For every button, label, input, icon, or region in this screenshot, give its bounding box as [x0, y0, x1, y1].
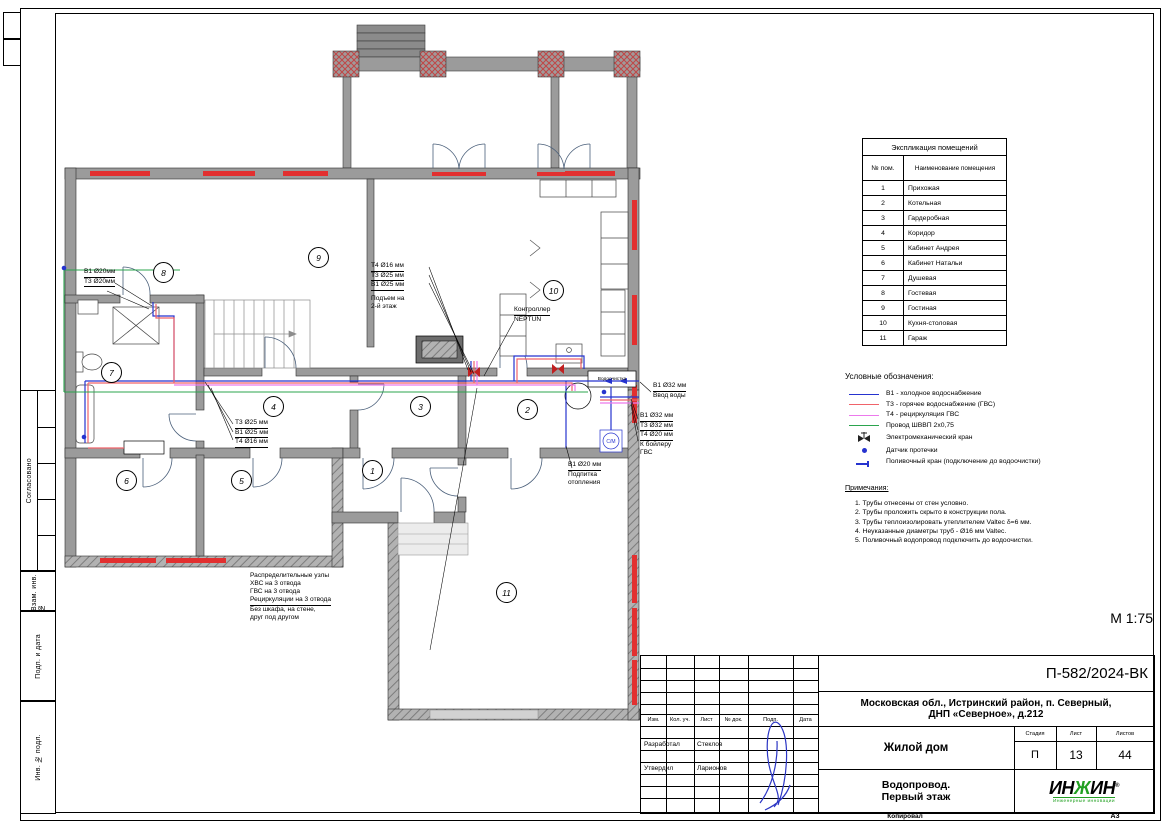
note-item: 1. Трубы отнесены от стен условно. [845, 500, 1145, 508]
label-washing-machine: С/М [601, 438, 621, 446]
room-number-10: 10 [543, 280, 564, 301]
annotation-manifold: Распределительные узлы ХВС на 3 отвода Г… [250, 572, 331, 622]
legend-item: Т3 - горячее водоснабжение (ГВС) [845, 401, 1145, 409]
note-item: 4. Неуказанные диаметры труб - Ø16 мм Va… [845, 528, 1145, 536]
room-table-col-name: Наименование помещения [904, 156, 1006, 180]
room-table: Экспликация помещений № пом. Наименовани… [862, 138, 1007, 346]
annotation-corridor-pipes: Т3 Ø25 мм В1 Ø25 мм Т4 Ø16 мм [235, 419, 268, 448]
room-number-5: 5 [231, 470, 252, 491]
note-item: 2. Трубы проложить скрыто в конструкции … [845, 509, 1145, 517]
format-label: А3 [1090, 813, 1140, 820]
recirculation-line-icon [849, 415, 879, 416]
wire-line-icon [849, 425, 879, 426]
copied-label: Копировал [830, 813, 980, 820]
room-number-2: 2 [517, 399, 538, 420]
legend-item: В1 - холодное водоснабжение [845, 390, 1145, 398]
table-row: 2Котельная [863, 196, 1006, 211]
sheets-total: 44 [1096, 741, 1154, 769]
room-number-3: 3 [410, 396, 431, 417]
leak-sensor-icon [849, 448, 879, 453]
leader-lines [107, 267, 651, 650]
doc-number: П-582/2024-ВК [818, 656, 1148, 691]
legend-item: Поливочный кран (подключение до водоочис… [845, 458, 1145, 468]
sheet-number: 13 [1056, 741, 1096, 769]
legend-item: Т4 - рециркуляция ГВС [845, 411, 1145, 419]
room-table-title: Экспликация помещений [863, 139, 1006, 156]
legend: Условные обозначения: В1 - холодное водо… [845, 372, 1145, 470]
logo-accent: Ж [1074, 778, 1090, 798]
label-water-treatment: Водоочистка [589, 376, 635, 384]
garden-tap-icon [849, 460, 879, 468]
note-item: 5. Поливочный водопровод подключить до в… [845, 537, 1145, 545]
room-number-7: 7 [101, 362, 122, 383]
windows [90, 171, 637, 705]
sheets-label: Листов [1096, 726, 1154, 741]
drawing-title-2: Первый этаж [882, 791, 951, 803]
table-row: 9Гостиная [863, 301, 1006, 316]
room-number-4: 4 [263, 396, 284, 417]
col-data: Дата [793, 714, 818, 726]
room-number-9: 9 [308, 247, 329, 268]
logo-tagline: Инженерные инновации [1053, 797, 1115, 804]
room-table-col-num: № пом. [863, 156, 904, 180]
annotation-left-pipes: В1 Ø20мм Т3 Ø20мм [84, 268, 115, 287]
developer-name: Стеклов [695, 738, 749, 750]
room-number-11: 11 [496, 582, 517, 603]
annotation-inlet: В1 Ø32 мм Ввод воды [653, 382, 686, 400]
role-approver: Утвердил [642, 762, 696, 774]
annotation-heating-feed: В1 Ø20 мм Подпитка отопления [568, 461, 601, 487]
table-row: 10Кухня-столовая [863, 316, 1006, 331]
table-row: 3Гардеробная [863, 211, 1006, 226]
table-row: 6Кабинет Натальи [863, 256, 1006, 271]
legend-item: Датчик протечки [845, 447, 1145, 455]
legend-item: Электромеханический кран [845, 432, 1145, 444]
sheet-label: Лист [1056, 726, 1096, 741]
room-number-8: 8 [153, 262, 174, 283]
col-kol-uch: Кол. уч. [666, 714, 694, 726]
scale-label: М 1:75 [1063, 610, 1153, 626]
approver-name: Ларионов [695, 762, 749, 774]
annotation-boiler-feed: В1 Ø32 мм Т3 Ø32 мм Т4 Ø20 мм К бойлеру … [640, 412, 673, 457]
electro-valve-icon [849, 432, 879, 444]
hot-water-line-icon [849, 404, 879, 405]
drawing-title-1: Водопровод. [882, 779, 950, 791]
table-row: 7Душевая [863, 271, 1006, 286]
stage-label: Стадия [1014, 726, 1056, 741]
notes: Примечания: 1. Трубы отнесены от стен ус… [845, 484, 1145, 546]
title-block: Изм. Кол. уч. Лист № док. Подп. Дата Раз… [640, 655, 1155, 814]
notes-title: Примечания: [845, 484, 1145, 492]
room-number-6: 6 [116, 470, 137, 491]
table-row: 4Коридор [863, 226, 1006, 241]
col-doc: № док. [719, 714, 748, 726]
table-row: 5Кабинет Андрея [863, 241, 1006, 256]
signature [748, 715, 796, 811]
room-number-1: 1 [362, 460, 383, 481]
table-row: 8Гостевая [863, 286, 1006, 301]
col-izm: Изм. [641, 714, 666, 726]
object-name: Жилой дом [818, 726, 1014, 769]
drawing-sheet: Согласовано Взам. инв. № Подп. и дата Ин… [0, 0, 1166, 824]
company-logo: ИНЖИН® Инженерные инновации [1014, 769, 1154, 813]
annotation-controller: Контроллер NEPTUN [514, 306, 550, 324]
legend-item: Провод ШВВП 2х0,75 [845, 422, 1145, 430]
col-list: Лист [694, 714, 719, 726]
stage-value: П [1014, 741, 1056, 769]
annotation-riser: Т4 Ø16 мм Т3 Ø25 мм В1 Ø25 мм Подъем на … [371, 262, 404, 311]
registered-mark: ® [1115, 783, 1119, 789]
porch [333, 25, 640, 168]
cold-water-line-icon [849, 394, 879, 395]
legend-title: Условные обозначения: [845, 372, 1145, 381]
table-row: 11Гараж [863, 331, 1006, 345]
address-line-2: ДНП «Северное», д.212 [929, 709, 1044, 720]
address-line-1: Московская обл., Истринский район, п. Се… [861, 698, 1112, 709]
note-item: 3. Трубы теплоизолировать утеплителем Va… [845, 519, 1145, 527]
role-developer: Разработал [642, 738, 696, 750]
table-row: 1Прихожая [863, 181, 1006, 196]
